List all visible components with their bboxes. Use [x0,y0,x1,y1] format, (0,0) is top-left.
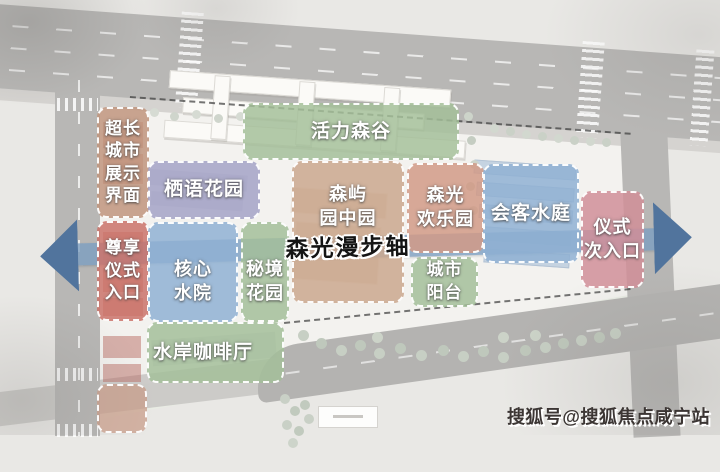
zone-joy-park: 森光 欢乐园 [407,163,484,253]
site-plan-screenshot: { "axis": { "label": "森光漫步轴" }, "waterma… [0,0,720,435]
zone-secondary-entrance: 仪式 次入口 [581,191,644,288]
building-block-red [103,336,141,358]
building-block-red [103,364,141,382]
zone-vitality-valley: 活力森谷 [243,103,459,160]
trees-row-south [298,330,309,341]
zone-label: 核心 水院 [174,224,212,306]
zone-label: 水岸咖啡厅 [149,340,253,365]
zone-label: 森屿 园中园 [320,163,377,231]
zone-waterfront-cafe: 水岸咖啡厅 [147,322,284,383]
zone-label: 尊享 仪式 入口 [105,237,141,304]
watermark: 搜狐号@搜狐焦点咸宁站 [507,403,710,429]
trees-strip-center [464,112,473,121]
zone-label: 栖语花园 [164,177,244,202]
zone-label: 活力森谷 [311,119,391,144]
zone-label: 仪式 次入口 [584,216,641,264]
zone-ceremony-entrance: 尊享 仪式 入口 [97,221,149,321]
zone-label: 秘境 花园 [246,224,284,306]
trees-cluster-bottom-left [280,394,290,404]
zone-label: 森光 欢乐园 [417,184,474,232]
zone-display-interface: 超长 城市 展示 界面 [97,107,149,218]
zone-secret-garden: 秘境 花园 [241,222,289,322]
zone-label: 城市 阳台 [427,259,463,305]
zone-senyu-garden: 森屿 园中园 [292,161,404,303]
zone-qiyu-garden: 栖语花园 [148,161,260,219]
zone-entry-extension [97,384,147,433]
zone-guest-water-court: 会客水庭 [483,164,579,263]
zone-core-water-yard: 核心 水院 [148,222,238,322]
zone-label: 超长 城市 展示 界面 [105,118,141,208]
zone-label: 会客水庭 [491,201,571,226]
legend-line [333,415,363,418]
trees-row-northwest [150,108,159,117]
zone-city-balcony: 城市 阳台 [411,257,478,307]
trees-row-northeast [490,124,499,133]
plan-legend-box [318,406,378,428]
